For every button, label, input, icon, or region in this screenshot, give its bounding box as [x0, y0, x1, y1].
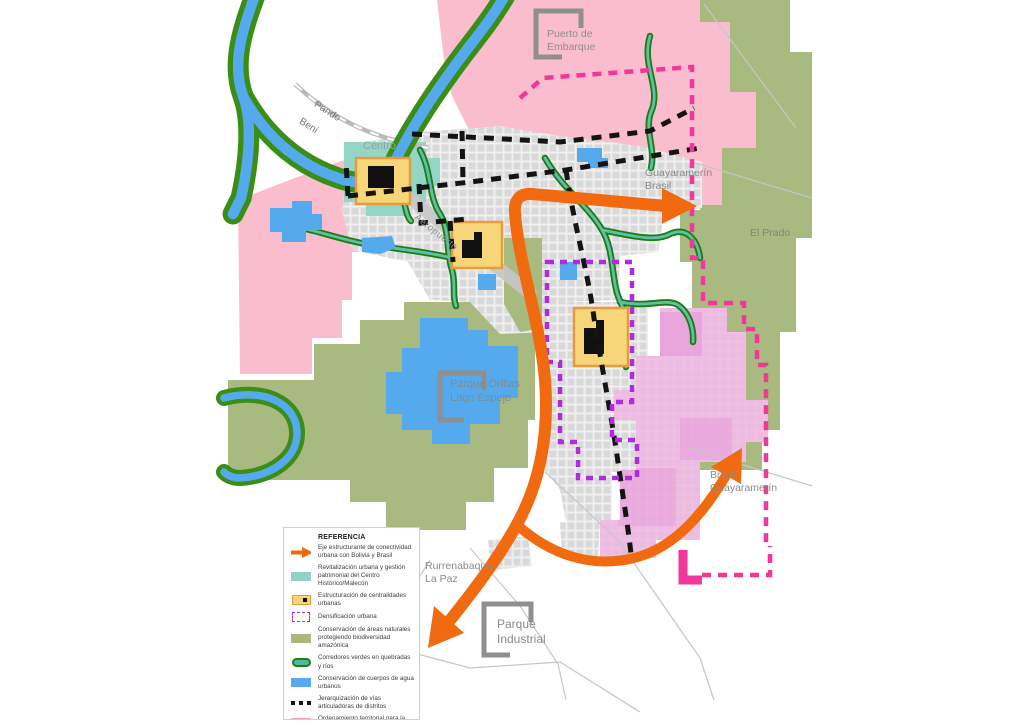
- legend-swatch-centrality-icon: [291, 595, 311, 605]
- label-parque-orillas-lago-espejo: Parque Orillas Lago Espejo: [450, 378, 520, 406]
- legend-swatch-olive-area-icon: [291, 634, 311, 643]
- legend-item: Ordenamiento territorial para la prevenc…: [291, 715, 414, 720]
- legend-item: Revitalización urbana y gestión patrimon…: [291, 564, 414, 588]
- legend-item: Eje estructurante de conectividad urbana…: [291, 544, 414, 560]
- label-puerto-de-embarque: Puerto de Embarque: [547, 28, 595, 54]
- legend-swatch-blue-area-icon: [291, 678, 311, 687]
- legend-item: Conservación de áreas naturales protegie…: [291, 626, 414, 650]
- urban-planning-map: Centro Pando Beni Aeropuerto Puerto de E…: [0, 0, 1024, 724]
- legend-item: Estructuración de centralidades urbanas: [291, 592, 414, 608]
- map-canvas: [0, 0, 1024, 724]
- legend-item: Jerarquización de vías articuladoras de …: [291, 695, 414, 711]
- label-rurrenabaque-la-paz: Rurrenabaque La Paz: [425, 560, 492, 586]
- legend-swatch-black-dotted-icon: [291, 701, 311, 705]
- label-el-prado: El Prado: [750, 227, 790, 240]
- legend-item: Conservación de cuerpos de agua urbanos: [291, 675, 414, 691]
- legend-item: Densificación urbana: [291, 612, 414, 622]
- legend-swatch-orange-arrow-icon: [291, 547, 311, 558]
- legend-swatch-purple-dashed-icon: [291, 612, 311, 622]
- legend-swatch-teal-area-icon: [291, 572, 311, 581]
- label-guayaramerin-brasil: Guayaramerín Brasil: [645, 167, 712, 193]
- label-parque-industrial: Parque Industrial: [497, 617, 546, 647]
- label-centro: Centro: [363, 140, 396, 154]
- legend-item: Corredores verdes en quebradas y ríos: [291, 654, 414, 670]
- legend-title: REFERENCIA: [318, 534, 414, 541]
- legend-swatch-pink-area-icon: [291, 718, 311, 720]
- legend-swatch-green-corridor-icon: [291, 658, 311, 667]
- label-brasil-guayaramerin: Brasil Guayaramerín: [710, 469, 777, 495]
- legend: REFERENCIA Eje estructurante de conectiv…: [283, 527, 420, 720]
